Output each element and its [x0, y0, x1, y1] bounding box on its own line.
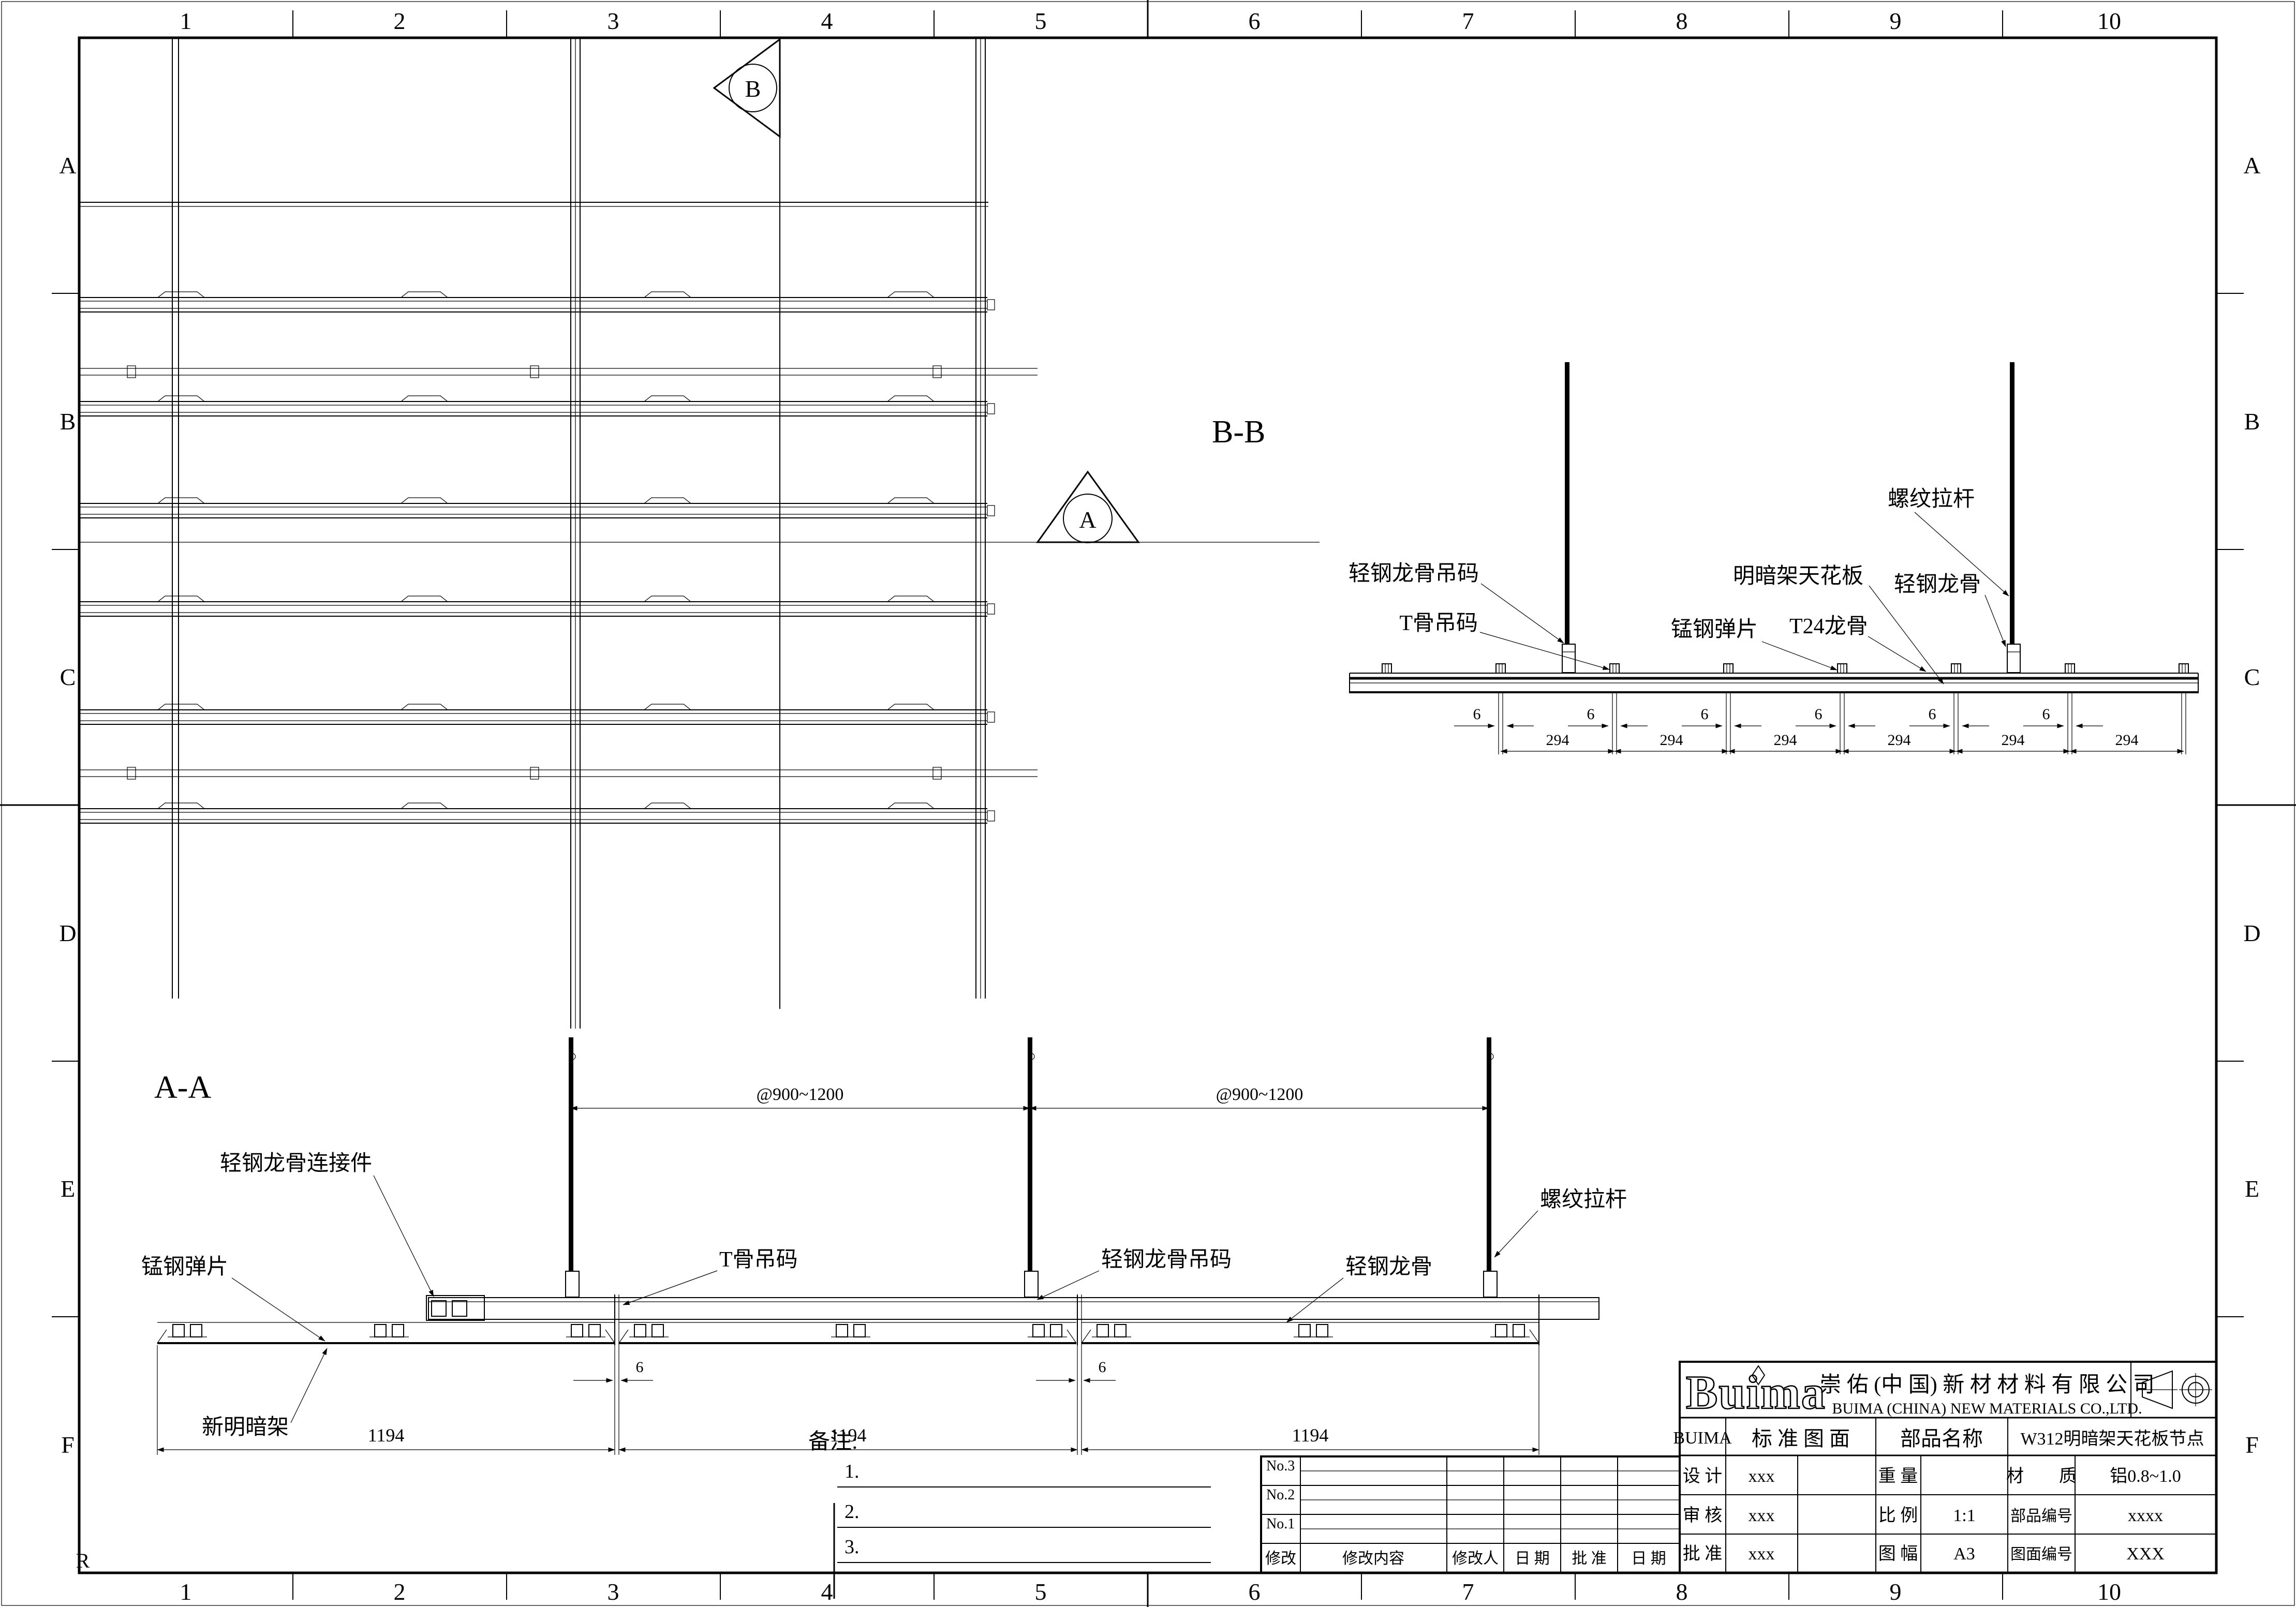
- section-bb: B-B 6 6 6 6 6 6 294 294 294 294 294: [1212, 362, 2198, 754]
- callout-label: T骨吊码: [719, 1248, 798, 1272]
- drawing-frame: 1 2 3 4 5 6 7 8 9 10 1 2 3 4 5 6 7 8 9 1…: [0, 0, 2296, 1607]
- callout-label: 轻钢龙骨: [1345, 1255, 1432, 1279]
- dim-gap: 6: [1929, 706, 1936, 723]
- dim-gap: 6: [1815, 706, 1823, 723]
- zone-label: 5: [1035, 1579, 1047, 1605]
- zone-numbers-top: 1 2 3 4 5 6 7 8 9 10: [180, 8, 2122, 34]
- bb-callouts: 轻钢龙骨吊码 T骨吊码 锰钢弹片 明暗架天花板 T24龙骨 螺纹拉杆 轻钢龙骨: [1349, 487, 2009, 684]
- zone-label: 10: [2097, 1579, 2121, 1605]
- dim-module: 294: [1774, 732, 1797, 749]
- note-item: 1.: [845, 1461, 860, 1482]
- revision-header: 批 准: [1572, 1550, 1607, 1567]
- zone-label: D: [59, 920, 76, 946]
- revision-header: 修改: [1265, 1550, 1296, 1567]
- zone-label: A: [2243, 152, 2260, 178]
- hanger-rod: [566, 1037, 579, 1297]
- engineering-drawing: 1 2 3 4 5 6 7 8 9 10 1 2 3 4 5 6 7 8 9 1…: [0, 0, 2296, 1607]
- callout-label: 新明暗架: [202, 1416, 289, 1439]
- dim-panel: 1194: [1292, 1425, 1329, 1446]
- corner-mark: R: [76, 1549, 90, 1572]
- callout-label: T24龙骨: [1789, 615, 1868, 638]
- zone-label: 7: [1462, 8, 1474, 34]
- plan-grid-lines: [79, 38, 1038, 1029]
- material-value: 铝0.8~1.0: [2110, 1467, 2181, 1486]
- zone-label: 10: [2097, 8, 2121, 34]
- zone-label: 1: [180, 1579, 192, 1605]
- check-value: xxx: [1749, 1506, 1775, 1525]
- bb-dimensions: 6 6 6 6 6 6 294 294 294 294 294 294: [1454, 693, 2186, 754]
- ceiling-panel: [1082, 1322, 1539, 1343]
- dim-gap: 6: [1099, 1359, 1106, 1376]
- callout-label: 明暗架天花板: [1733, 564, 1863, 588]
- ceiling-panel: [157, 1322, 615, 1343]
- dim-gap: 6: [1701, 706, 1709, 723]
- scale-value: 1:1: [1953, 1506, 1975, 1525]
- zone-numbers-bottom: 1 2 3 4 5 6 7 8 9 10: [180, 1579, 2122, 1605]
- note-item: 2.: [845, 1501, 860, 1523]
- revision-row-no: No.1: [1266, 1516, 1295, 1532]
- company-logo: Buima: [1686, 1366, 1826, 1419]
- part-name-value: W312明暗架天花板节点: [2020, 1429, 2204, 1449]
- dim-gap: 6: [636, 1359, 644, 1376]
- callout-label: 锰钢弹片: [1671, 618, 1758, 642]
- material-label: 材 质: [2006, 1466, 2077, 1486]
- title-block: Buima 崇 佑 (中 国) 新 材 材 料 有 限 公 司 BUIMA (C…: [1673, 1362, 2216, 1573]
- company-name-en: BUIMA (CHINA) NEW MATERIALS CO.,LTD.: [1832, 1400, 2142, 1417]
- company-name-cn: 崇 佑 (中 国) 新 材 材 料 有 限 公 司: [1819, 1373, 2154, 1397]
- hanger-rod: [2007, 362, 2020, 673]
- brand-cell: BUIMA: [1673, 1429, 1732, 1448]
- part-no-value: xxxx: [2128, 1506, 2163, 1525]
- zone-label: 6: [1249, 8, 1261, 34]
- zone-label: B: [2244, 408, 2260, 435]
- zone-label: E: [2245, 1176, 2259, 1202]
- scale-label: 比 例: [1878, 1506, 1918, 1525]
- dim-gap: 6: [2042, 706, 2050, 723]
- part-no-label: 部品编号: [2010, 1508, 2072, 1525]
- design-value: xxx: [1749, 1467, 1775, 1486]
- aa-runner: [426, 1296, 1599, 1320]
- zone-label: 2: [394, 1579, 406, 1605]
- zone-label: 4: [821, 8, 833, 34]
- section-bb-title: B-B: [1212, 414, 1265, 450]
- dim-module: 294: [2002, 732, 2025, 749]
- hanger-rod: [1025, 1037, 1038, 1297]
- callout-label: 螺纹拉杆: [1540, 1187, 1627, 1212]
- section-aa: A-A @900~1200 @900~1200 1194 1194: [141, 1037, 1627, 1455]
- aa-callouts: 轻钢龙骨连接件 锰钢弹片 T骨吊码 轻钢龙骨吊码 轻钢龙骨 螺纹拉杆 新明暗架: [141, 1152, 1627, 1439]
- zone-label: A: [59, 152, 76, 178]
- dim-module: 294: [2115, 732, 2139, 749]
- standard-drawing-cell: 标 准 图 面: [1752, 1427, 1850, 1450]
- revision-header: 修改人: [1452, 1550, 1499, 1567]
- dim-module: 294: [1660, 732, 1683, 749]
- note-item: 3.: [845, 1536, 860, 1558]
- check-label: 审 核: [1683, 1506, 1723, 1525]
- revision-table: No.3 No.2 No.1 修改 修改内容 修改人 日 期 批 准 日 期: [1261, 1456, 1680, 1573]
- zone-label: 5: [1035, 8, 1047, 34]
- zone-label: C: [2244, 664, 2260, 690]
- zone-label: E: [61, 1176, 75, 1202]
- zone-label: F: [2245, 1432, 2259, 1458]
- revision-header: 日 期: [1515, 1550, 1550, 1567]
- callout-label: 锰钢弹片: [141, 1255, 228, 1279]
- bb-ceiling-assembly: [1350, 664, 2198, 693]
- section-marker-a: A: [1038, 472, 1138, 543]
- hanger-rod: [1484, 1037, 1497, 1297]
- dim-gap: 6: [1587, 706, 1595, 723]
- dim-module: 294: [1546, 732, 1569, 749]
- approve-value: xxx: [1749, 1544, 1775, 1564]
- callout-label: 轻钢龙骨吊码: [1101, 1248, 1232, 1272]
- callout-label: 轻钢龙骨: [1894, 573, 1981, 597]
- section-marker-b: B: [714, 39, 780, 137]
- zone-label: 2: [394, 8, 406, 34]
- zone-label: B: [60, 408, 76, 435]
- callout-label: 螺纹拉杆: [1888, 487, 1975, 511]
- sheet-value: A3: [1953, 1544, 1975, 1564]
- revision-header: 修改内容: [1342, 1550, 1404, 1567]
- zone-label: 6: [1249, 1579, 1261, 1605]
- zone-label: 9: [1890, 8, 1902, 34]
- dim-spacing: @900~1200: [757, 1085, 844, 1104]
- dim-module: 294: [1888, 732, 1911, 749]
- zone-label: C: [60, 664, 76, 690]
- zone-label: 8: [1676, 1579, 1688, 1605]
- drawing-no-value: XXX: [2126, 1544, 2165, 1564]
- revision-row-no: No.2: [1266, 1487, 1295, 1503]
- approve-label: 批 准: [1683, 1544, 1723, 1564]
- zone-label: F: [61, 1432, 75, 1458]
- dim-spacing: @900~1200: [1216, 1085, 1303, 1104]
- zone-label: 4: [821, 1579, 833, 1605]
- plan-view: A B: [79, 38, 1320, 1029]
- callout-label: 轻钢龙骨连接件: [220, 1152, 372, 1176]
- part-name-label: 部品名称: [1900, 1427, 1983, 1450]
- drawing-sheet: 1 2 3 4 5 6 7 8 9 10 1 2 3 4 5 6 7 8 9 1…: [0, 0, 2296, 1607]
- section-aa-title: A-A: [154, 1070, 211, 1105]
- callout-label: 轻钢龙骨吊码: [1349, 562, 1479, 586]
- zone-label: 8: [1676, 8, 1688, 34]
- zone-ticks: [0, 0, 2296, 1607]
- revision-row-no: No.3: [1266, 1458, 1295, 1474]
- weight-label: 重 量: [1878, 1467, 1918, 1486]
- ceiling-panel: [619, 1322, 1076, 1343]
- dim-gap: 6: [1473, 706, 1481, 723]
- notes-title: 备注:: [808, 1430, 858, 1454]
- dim-panel: 1194: [368, 1425, 405, 1446]
- zone-label: 9: [1890, 1579, 1902, 1605]
- revision-header: 日 期: [1631, 1550, 1666, 1567]
- zone-label: 3: [608, 1579, 619, 1605]
- drawing-no-label: 图面编号: [2010, 1546, 2072, 1563]
- hanger-rod: [1562, 362, 1575, 673]
- design-label: 设 计: [1683, 1467, 1723, 1486]
- zone-label: 3: [608, 8, 619, 34]
- section-marker-b-label: B: [745, 76, 761, 102]
- sheet-label: 图 幅: [1878, 1544, 1918, 1564]
- zone-label: D: [2243, 920, 2260, 946]
- callout-label: T骨吊码: [1399, 612, 1478, 635]
- zone-label: 7: [1462, 1579, 1474, 1605]
- section-marker-a-label: A: [1079, 507, 1096, 533]
- zone-label: 1: [180, 8, 192, 34]
